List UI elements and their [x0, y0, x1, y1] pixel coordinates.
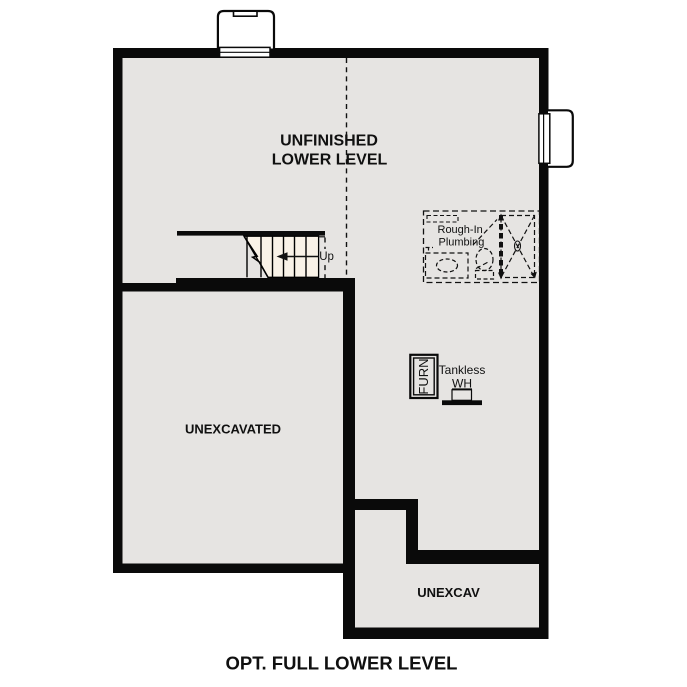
svg-text:UNEXCAV: UNEXCAV: [417, 585, 480, 600]
svg-text:UNFINISHED: UNFINISHED: [280, 133, 378, 150]
svg-text:Plumbing: Plumbing: [439, 236, 485, 248]
svg-text:Tankless: Tankless: [439, 363, 486, 377]
svg-text:Up: Up: [319, 251, 334, 263]
svg-text:Rough-In: Rough-In: [438, 224, 483, 236]
svg-text:OPT. FULL LOWER LEVEL: OPT. FULL LOWER LEVEL: [226, 653, 458, 674]
svg-text:FURN: FURN: [416, 358, 431, 394]
svg-text:LOWER LEVEL: LOWER LEVEL: [272, 152, 388, 169]
svg-text:UNEXCAVATED: UNEXCAVATED: [185, 421, 281, 436]
